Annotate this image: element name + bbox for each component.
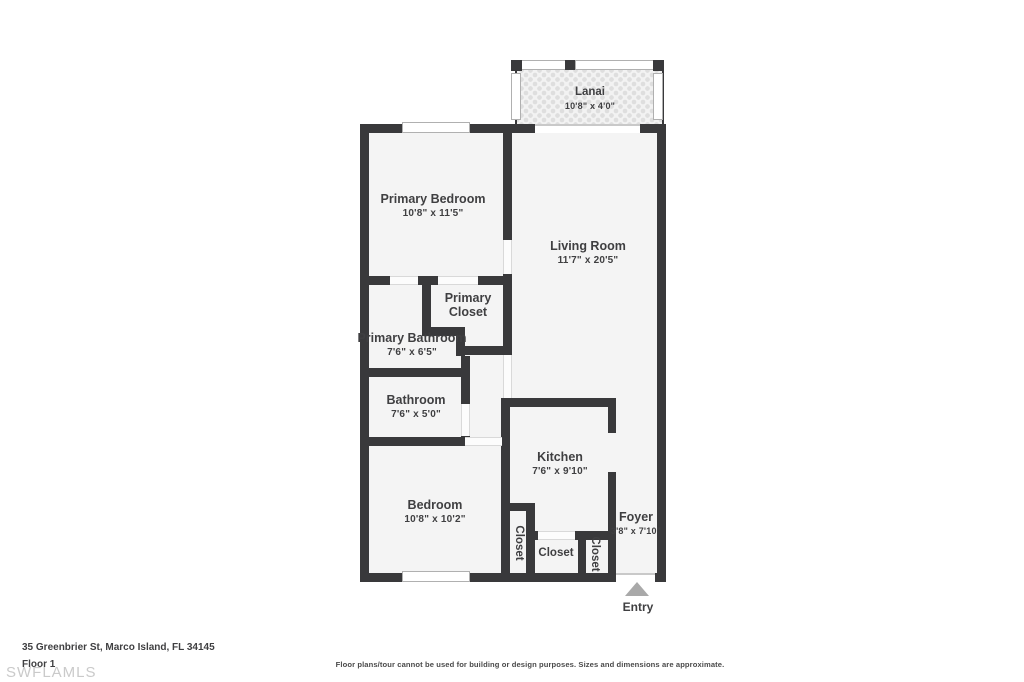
lanai-post [565, 60, 575, 70]
door-opening [503, 355, 512, 398]
wall [608, 398, 616, 433]
wall [418, 276, 438, 285]
wall [360, 368, 465, 377]
room-label-primary-bathroom: Primary Bathroom 7'6" x 6'5" [357, 331, 466, 358]
room-name: Bedroom [404, 498, 465, 512]
room-label-primary-closet: Primary Closet [425, 291, 511, 319]
room-dims: 10'8" x 11'5" [381, 208, 486, 219]
entry-door-opening [616, 573, 655, 582]
room-dims: 3'8" x 7'10" [611, 526, 661, 536]
room-label-closet-c: Closet [589, 536, 601, 571]
room-dims: 7'6" x 9'10" [532, 466, 588, 477]
lanai-window [511, 73, 521, 120]
room-label-kitchen: Kitchen 7'6" x 9'10" [532, 450, 588, 477]
room-dims: 10'8" x 10'2" [404, 514, 465, 525]
entry-arrow-icon [625, 582, 649, 596]
room-name: Foyer [611, 510, 661, 524]
door-opening [538, 531, 575, 540]
door-opening [503, 240, 512, 274]
room-name: Closet [538, 547, 573, 560]
room-name: Primary Bedroom [381, 192, 486, 206]
lanai-corner-post [653, 60, 664, 71]
wall [578, 531, 586, 573]
wall [503, 133, 512, 240]
lanai-window [653, 73, 663, 120]
room-label-bedroom: Bedroom 10'8" x 10'2" [404, 498, 465, 525]
room-label-foyer: Foyer 3'8" x 7'10" [611, 510, 661, 536]
room-name: Kitchen [532, 450, 588, 464]
wall [478, 276, 512, 285]
room-label-closet-b: Closet [538, 547, 573, 560]
mls-watermark: SWFLAMLS [6, 664, 97, 681]
room-name: Bathroom [386, 393, 445, 407]
lanai-window [521, 60, 566, 70]
door-opening [465, 437, 502, 446]
wall [461, 356, 470, 404]
wall [501, 398, 510, 573]
lanai-sliding-door [535, 124, 640, 133]
room-name: Living Room [550, 239, 626, 253]
room-label-lanai: Lanai 10'8" x 4'0" [565, 86, 615, 111]
door-opening [390, 276, 418, 285]
disclaimer-text: Floor plans/tour cannot be used for buil… [336, 660, 725, 669]
room-dims: 10'8" x 4'0" [565, 101, 615, 111]
wall [360, 437, 465, 446]
property-address: 35 Greenbrier St, Marco Island, FL 34145 [22, 642, 215, 653]
door-opening [461, 404, 470, 436]
room-name: Lanai [565, 86, 615, 99]
bedroom-window [402, 122, 470, 133]
floor-plan-canvas: Lanai 10'8" x 4'0" Primary Bedroom 10'8"… [0, 0, 1024, 682]
room-dims: 11'7" x 20'5" [550, 255, 626, 266]
room-label-living-room: Living Room 11'7" x 20'5" [550, 239, 626, 266]
room-dims: 7'6" x 5'0" [386, 409, 445, 420]
wall [502, 398, 616, 407]
room-name: Primary Closet [425, 291, 511, 319]
room-name: Primary Bathroom [357, 331, 466, 345]
entry-label: Entry [623, 600, 654, 614]
room-label-bathroom: Bathroom 7'6" x 5'0" [386, 393, 445, 420]
lanai-window [575, 60, 654, 70]
bedroom-window [402, 571, 470, 582]
room-dims: 7'6" x 6'5" [357, 347, 466, 358]
room-label-primary-bedroom: Primary Bedroom 10'8" x 11'5" [381, 192, 486, 219]
wall [360, 276, 390, 285]
lanai-corner-post [511, 60, 522, 71]
room-label-closet-a: Closet [513, 525, 525, 560]
door-opening [438, 276, 478, 285]
